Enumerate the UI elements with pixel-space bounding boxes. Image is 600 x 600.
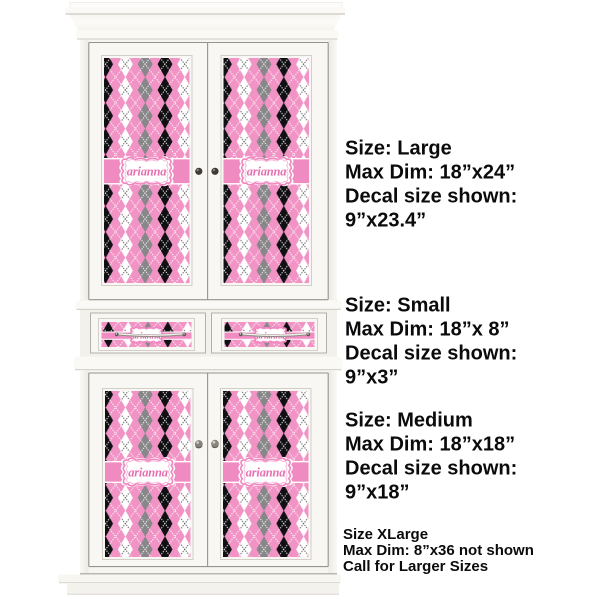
svg-text:Size: Medium: Size: Medium xyxy=(345,410,473,432)
svg-text:Decal size shown:: Decal size shown: xyxy=(345,186,517,208)
svg-text:Max Dim: 18”x18”: Max Dim: 18”x18” xyxy=(345,434,515,456)
svg-text:arianna: arianna xyxy=(128,466,168,480)
svg-text:arianna: arianna xyxy=(247,165,287,179)
svg-text:9”x18”: 9”x18” xyxy=(345,482,410,504)
svg-text:Max Dim: 18”x24”: Max Dim: 18”x24” xyxy=(345,162,515,184)
svg-text:Size: Large: Size: Large xyxy=(345,138,452,160)
svg-text:Max Dim: 8”x36 not shown: Max Dim: 8”x36 not shown xyxy=(343,542,534,559)
svg-text:9”x3”: 9”x3” xyxy=(345,367,398,389)
svg-text:Max Dim: 18”x 8”: Max Dim: 18”x 8” xyxy=(345,319,510,341)
svg-text:Call for Larger Sizes: Call for Larger Sizes xyxy=(343,558,488,575)
svg-text:9”x23.4”: 9”x23.4” xyxy=(345,210,426,232)
svg-text:arianna: arianna xyxy=(127,165,167,179)
svg-text:Size: Small: Size: Small xyxy=(345,295,451,317)
svg-text:arianna: arianna xyxy=(246,466,286,480)
svg-text:Size XLarge: Size XLarge xyxy=(343,526,428,543)
svg-text:Decal size shown:: Decal size shown: xyxy=(345,458,517,480)
svg-text:Decal size shown:: Decal size shown: xyxy=(345,343,517,365)
